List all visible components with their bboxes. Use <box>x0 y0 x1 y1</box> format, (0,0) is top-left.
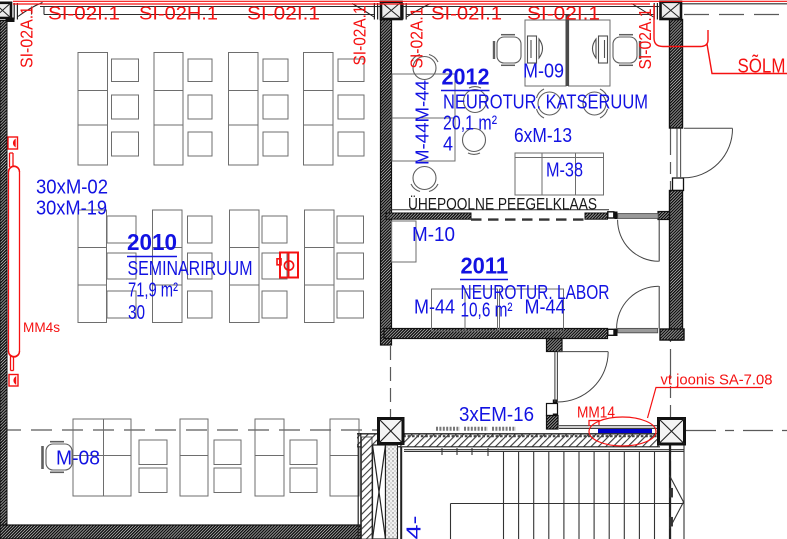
svg-text:30xM-19: 30xM-19 <box>36 198 107 220</box>
svg-text:M-44: M-44 <box>414 297 455 319</box>
svg-text:SI-02H.1: SI-02H.1 <box>139 3 218 24</box>
svg-text:NEUROTUR. KATSERUUM: NEUROTUR. KATSERUUM <box>443 91 648 114</box>
svg-text:M-44M-44: M-44M-44 <box>413 80 433 165</box>
svg-text:MM14: MM14 <box>577 405 615 422</box>
svg-text:vt joonis SA-7.08: vt joonis SA-7.08 <box>661 372 773 389</box>
svg-text:2010: 2010 <box>127 229 177 255</box>
svg-text:SI-02I.1: SI-02I.1 <box>247 3 320 24</box>
svg-text:SI-02I.1: SI-02I.1 <box>527 3 600 24</box>
svg-text:3xEM-16: 3xEM-16 <box>459 404 534 426</box>
svg-text:4: 4 <box>443 133 453 156</box>
svg-text:SI-02A.1: SI-02A.1 <box>17 6 37 68</box>
svg-text:SI-02A.1: SI-02A.1 <box>635 9 655 70</box>
svg-text:30: 30 <box>128 301 145 324</box>
svg-text:10,6 m²: 10,6 m² <box>461 299 513 322</box>
svg-text:30xM-02: 30xM-02 <box>36 177 108 199</box>
svg-text:SEMINARIRUUM: SEMINARIRUUM <box>128 257 253 280</box>
svg-text:M-44: M-44 <box>525 297 566 319</box>
svg-text:SI-02A.1: SI-02A.1 <box>350 6 370 66</box>
svg-text:4-: 4- <box>404 516 426 539</box>
svg-text:M-10: M-10 <box>412 224 455 246</box>
svg-text:M-38: M-38 <box>546 160 583 182</box>
svg-text:ÜHEPOOLNE PEEGELKLAAS: ÜHEPOOLNE PEEGELKLAAS <box>408 196 597 214</box>
svg-text:M-09: M-09 <box>523 61 564 83</box>
svg-text:SI-02A.1: SI-02A.1 <box>407 8 427 69</box>
svg-text:SÕLM 2: SÕLM 2 <box>738 54 787 78</box>
svg-text:6xM-13: 6xM-13 <box>514 125 572 147</box>
svg-text:20,1 m²: 20,1 m² <box>443 112 497 135</box>
svg-text:MM4s: MM4s <box>23 319 60 335</box>
svg-text:71,9 m²: 71,9 m² <box>128 279 178 302</box>
svg-text:M-08: M-08 <box>56 448 100 470</box>
svg-text:2011: 2011 <box>461 253 509 279</box>
svg-text:2012: 2012 <box>442 64 490 90</box>
svg-text:SI-02I.1: SI-02I.1 <box>431 3 502 24</box>
svg-text:SI-02I.1: SI-02I.1 <box>48 3 120 24</box>
